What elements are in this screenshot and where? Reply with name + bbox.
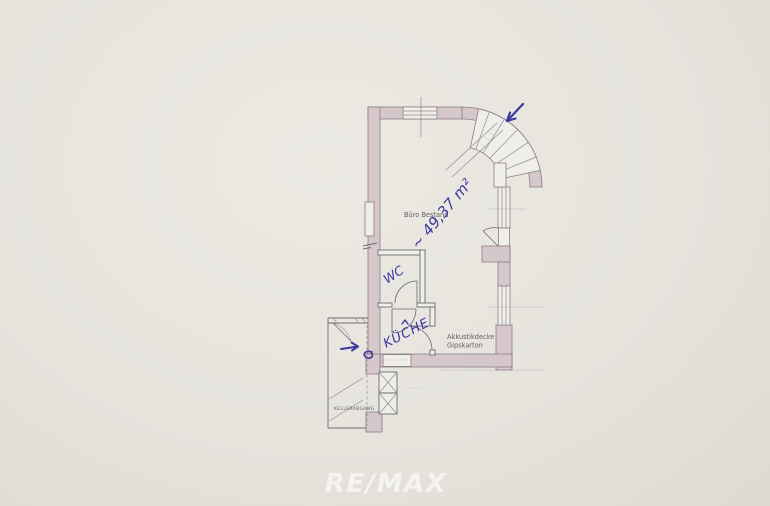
floorplan-scan: Büro Bestand Akkustikdecke Gipskarton KE… (0, 0, 770, 506)
door-corridor-entrance (333, 323, 351, 341)
window-left (365, 202, 374, 236)
wall-niche (494, 163, 506, 187)
kitchen-wall-right-lower (430, 350, 435, 355)
kitchen-annotation: KÜCHE (380, 314, 432, 352)
wall-bottom-opening (383, 355, 411, 367)
ceiling-note-line1: Akkustikdecke (447, 333, 494, 341)
wc-wall-right (420, 250, 425, 307)
cellar-stair-line (329, 378, 363, 399)
door-wc (395, 281, 417, 303)
ceiling-note-line2: Gipskarton (447, 342, 483, 350)
kitchen-wall-top (417, 303, 435, 307)
stair-wall-upper-block (366, 354, 380, 374)
ink-caret-mark (402, 320, 408, 324)
kitchen-wall-right-upper (430, 307, 435, 326)
door-right-to-entry (483, 228, 510, 246)
stair-wall-lower-block (366, 412, 382, 432)
window-right-lower (487, 286, 545, 325)
corridor-arrow-icon (341, 343, 358, 351)
wc-wall-bottom-stub (378, 303, 392, 307)
entrance-arrow-icon (507, 104, 523, 121)
basement-stairs (379, 372, 397, 414)
remax-watermark: RE/MAX (325, 469, 448, 499)
wc-annotation: WC (380, 262, 406, 286)
entrance-steps (446, 109, 540, 187)
wall-right-jut (482, 246, 510, 262)
basement-label: KELLERABGANG (334, 406, 375, 412)
window-top (403, 97, 437, 137)
window-right-upper (487, 187, 526, 228)
